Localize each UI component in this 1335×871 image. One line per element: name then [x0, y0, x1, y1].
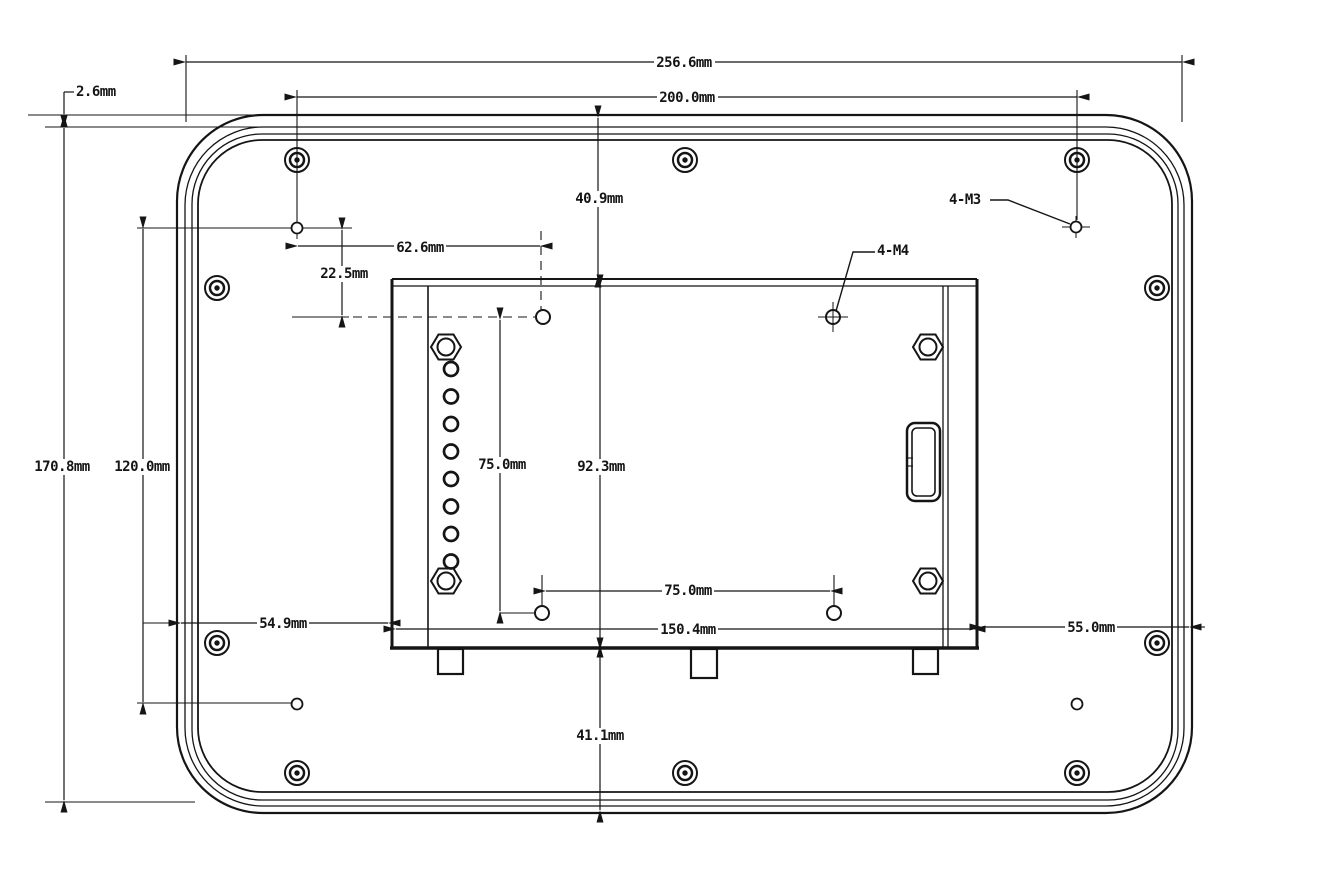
screw-icon [673, 148, 697, 172]
m3-hole [292, 699, 303, 710]
foot-tab [913, 649, 938, 674]
m4-hole [535, 606, 549, 620]
hex-standoff-icon [431, 335, 461, 360]
dim-label-overall-height: 170.8mm [34, 459, 90, 475]
screw-icon [1065, 761, 1089, 785]
screw-icon [285, 761, 309, 785]
dim-label-offset-y: 22.5mm [320, 266, 368, 282]
dim-label-mount-height: 120.0mm [114, 459, 170, 475]
label-vesa-thread: 4-M4 [877, 243, 909, 259]
m4-hole [827, 606, 841, 620]
dim-label-vesa-height: 75.0mm [478, 457, 526, 473]
hex-standoff-icon [913, 335, 943, 360]
screw-icon [205, 631, 229, 655]
dim-label-right-gap: 55.0mm [1067, 620, 1115, 636]
screw-icon [1145, 631, 1169, 655]
foot-tab [438, 649, 463, 674]
dim-label-offset-x: 62.6mm [396, 240, 444, 256]
screw-icon [205, 276, 229, 300]
dim-label-vesa-width: 75.0mm [664, 583, 712, 599]
dim-label-top-gap: 40.9mm [575, 191, 623, 207]
dim-label-left-gap: 54.9mm [259, 616, 307, 632]
m3-hole [1072, 699, 1083, 710]
hex-standoff-icon [913, 569, 943, 594]
dim-label-bracket-height: 92.3mm [577, 459, 625, 475]
dim-label-bracket-width: 150.4mm [660, 622, 716, 638]
drawing-canvas: 256.6mm 200.0mm 2.6mm 170.8mm 120.0mm 62… [0, 0, 1335, 871]
dim-label-bottom-gap: 41.1mm [576, 728, 624, 744]
screw-icon [1145, 276, 1169, 300]
dim-label-front-lip: 2.6mm [76, 84, 116, 100]
hex-standoff-icon [431, 569, 461, 594]
dim-label-mount-width: 200.0mm [659, 90, 715, 106]
screw-icon [673, 761, 697, 785]
label-mount-thread: 4-M3 [949, 192, 981, 208]
mount-bracket [390, 279, 979, 678]
m4-hole [536, 310, 550, 324]
mechanical-drawing-monitor-rear: 256.6mm 200.0mm 2.6mm 170.8mm 120.0mm 62… [0, 0, 1335, 871]
foot-tab [691, 649, 717, 678]
hdmi-port-icon [907, 423, 940, 501]
dim-label-overall-width: 256.6mm [656, 55, 712, 71]
